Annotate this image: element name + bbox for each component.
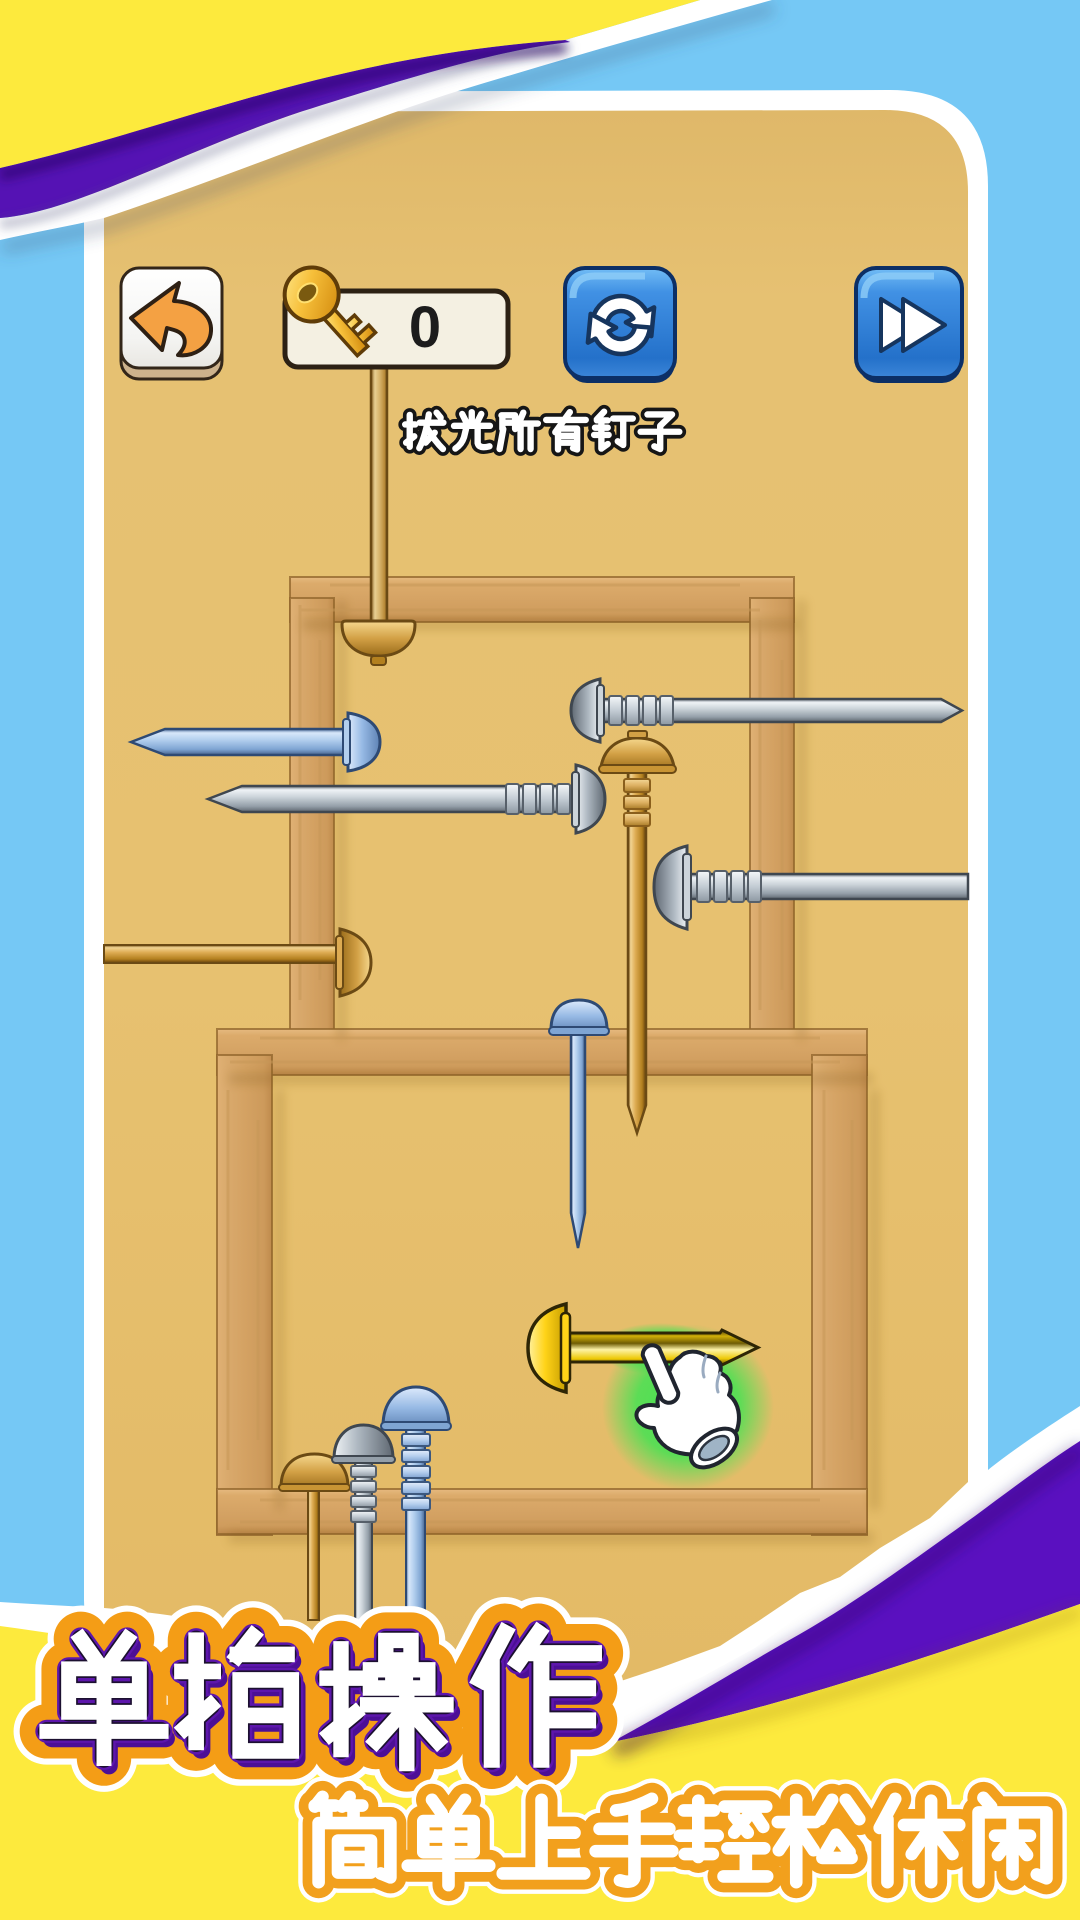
- svg-text:0: 0: [409, 295, 441, 360]
